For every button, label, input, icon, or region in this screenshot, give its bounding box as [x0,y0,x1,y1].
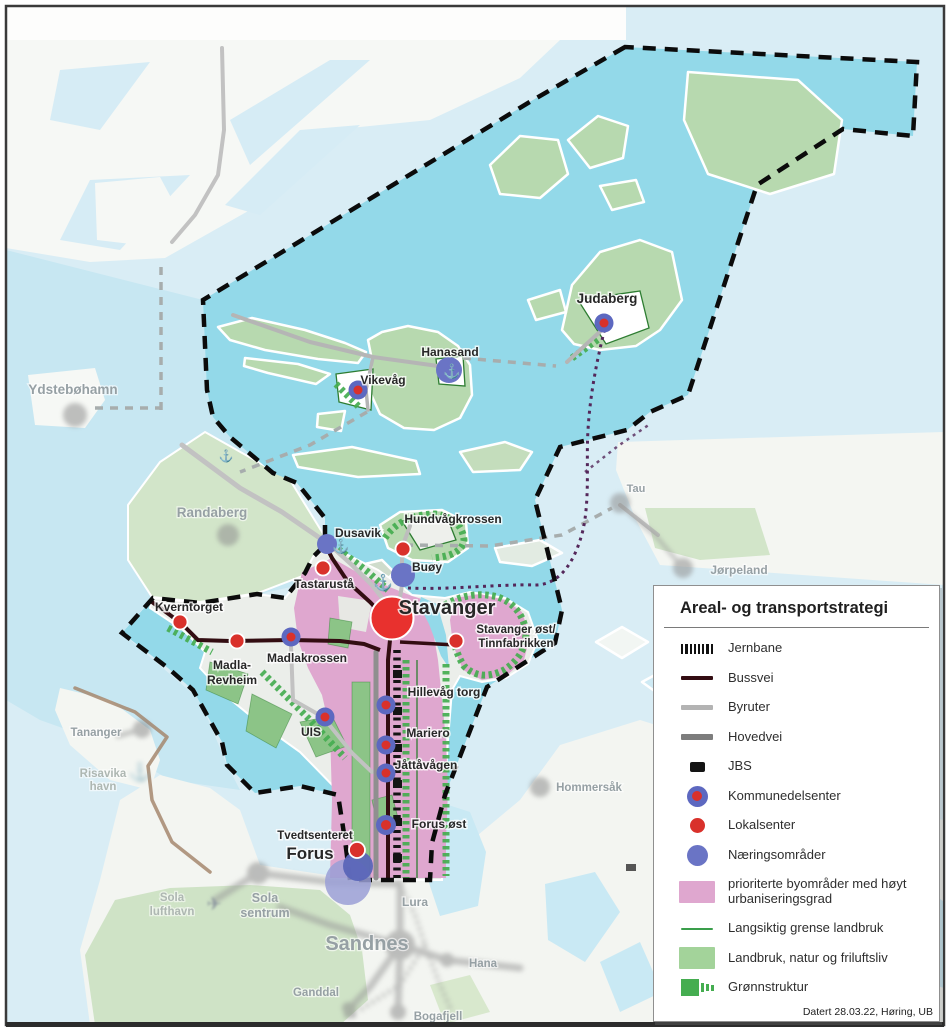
busway-line-icon [666,676,728,680]
map-page: ⚓ [0,0,950,1031]
legend-item-gronnstruktur: Grønnstruktur [654,973,939,1003]
anchor-icon: ⚓ [373,573,393,592]
label-buoy: Buøy [412,560,442,574]
label-sola-sentrum-1: Sola [252,891,279,905]
legend-item-jbs: JBS [654,752,939,782]
district-center-mariero [377,736,396,755]
urban-area-swatch-icon [666,881,728,903]
label-randaberg: Randaberg [177,505,248,520]
town-dot-randaberg [217,524,239,546]
legend-item-label: JBS [728,759,758,774]
legend-item-label: prioriterte byområder med høyt urbaniser… [728,877,924,906]
railway-icon [666,644,728,654]
district-center-icon [666,786,728,807]
label-dusavik: Dusavik [335,526,381,540]
label-stavanger-ost-1: Stavanger øst/ [476,624,556,636]
label-ganddal: Ganddal [293,987,339,999]
bussvei-corridor [388,640,390,878]
legend-item-landbruk: Landbruk, natur og friluftsliv [654,944,939,974]
label-madlakrossen: Madlakrossen [267,651,347,665]
label-sola-lufthavn-2: lufthavn [150,906,195,918]
map-frame-bottom [6,1022,944,1027]
label-hommersak: Hommersåk [556,782,622,794]
train-icon [344,1004,356,1018]
sola-green [85,885,368,1025]
local-center-icon [666,818,728,833]
legend-item-label: Grønnstruktur [728,980,814,995]
label-tvedtsenteret: Tvedtsenteret [277,830,353,842]
legend-item-label: Kommunedelsenter [728,789,847,804]
jbs-station [393,854,402,862]
town-dot-ydstebohamn [63,403,87,427]
train-station-icon [666,762,728,772]
label-forus: Forus [286,844,333,863]
legend-title: Areal- og transportstrategi [654,586,939,627]
legend-item-label: Landbruk, natur og friluftsliv [728,951,894,966]
local-center-tastarusta [316,561,331,576]
label-vikevag: Vikevåg [360,373,405,387]
local-center-madla [230,634,245,649]
label-risavika-2: havn [90,781,117,793]
label-madla-2: Revheim [207,673,257,687]
anchor-icon: ⚓ [332,538,349,555]
legend-footer: Datert 28.03.22, Høring, UB [803,1006,933,1018]
town-dot-tau [610,493,630,513]
jbs-station [393,670,402,678]
legend-separator [664,627,929,628]
label-uis: UIS [301,725,321,739]
legend-item-byomrader: prioriterte byområder med høyt urbaniser… [654,870,939,914]
label-stavanger-ost-2: Tinnfabrikken [478,638,553,650]
label-bogafjell: Bogafjell [414,1011,463,1023]
city-route-line-icon [666,705,728,710]
legend-item-kommunedelsenter: Kommunedelsenter [654,782,939,812]
district-center-hillevag [377,696,396,715]
local-center-kverntorget [173,615,188,630]
district-center-judaberg [595,314,614,333]
label-jorpeland: Jørpeland [710,563,767,577]
label-madla-1: Madla- [213,658,251,672]
legend-item-label: Byruter [728,700,776,715]
label-tau: Tau [627,483,646,495]
label-judaberg: Judaberg [577,291,638,306]
label-sola-sentrum-2: sentrum [240,906,289,920]
agri-boundary-line-icon [666,928,728,931]
legend-item-label: Næringsområder [728,848,832,863]
legend-item-label: Bussvei [728,671,780,686]
legend-item-bussvei: Bussvei [654,664,939,694]
local-center-hundvagkrossen [396,542,411,557]
main-road-line-icon [666,734,728,740]
plane-icon: ✈ [206,894,221,914]
district-center-forus-ost [376,815,396,835]
top-margin-land [6,6,626,40]
town-dot-sola [247,862,269,884]
town-dot-hommersak [530,777,550,797]
legend-item-label: Jernbane [728,641,788,656]
label-jattavagen: Jåttåvågen [395,758,458,772]
legend-item-lokalsenter: Lokalsenter [654,811,939,841]
legend-item-naeringsomrader: Næringsområder [654,841,939,871]
label-kverntorget: Kverntorget [155,600,223,614]
town-dot-jorpeland [673,558,693,578]
legend-item-hovedvei: Hovedvei [654,723,939,753]
district-center-madlakrossen [282,628,301,647]
label-hana: Hana [469,958,498,970]
legend-item-jernbane: Jernbane [654,634,939,664]
town-dot-bogafjell [390,1004,406,1020]
anchor-icon: ⚓ [219,449,234,463]
green-structure-icon [666,979,728,996]
legend-item-label: Hovedvei [728,730,788,745]
label-tananger: Tananger [71,727,122,739]
jbs-station [626,864,636,871]
legend-panel: Areal- og transportstrategi Jernbane Bus… [653,585,940,1022]
label-mariero: Mariero [406,726,449,740]
jbs-station [393,780,402,788]
local-center-stavanger-ost [449,634,464,649]
town-dot-tananger [133,720,151,738]
label-hillevag-torg: Hillevåg torg [408,685,481,699]
district-center-uis [316,708,335,727]
label-risavika-1: Risavika [80,768,127,780]
label-hanasand: Hanasand [421,345,478,359]
business-area-icon [666,845,728,866]
label-hundvagkrossen: Hundvågkrossen [404,512,501,526]
label-sandnes: Sandnes [325,933,408,955]
town-dot-hana [440,953,454,967]
legend-item-label: Lokalsenter [728,818,801,833]
local-center-tvedtsenteret [349,842,365,858]
anchor-icon: ⚓ [129,761,151,782]
label-tastarusta: Tastarustå [294,577,354,591]
label-ydstebohamn: Ydstebøhamn [28,382,117,397]
label-stavanger: Stavanger [399,597,496,619]
label-sola-lufthavn-1: Sola [160,892,185,904]
legend-item-byruter: Byruter [654,693,939,723]
district-center-jattavagen [377,764,396,783]
agriculture-swatch-icon [666,947,728,969]
anchor-icon: ⚓ [443,363,460,380]
legend-item-label: Langsiktig grense landbruk [728,921,889,936]
label-forus-ost: Forus øst [412,817,467,831]
label-lura: Lura [402,895,428,909]
legend-item-grense-landbruk: Langsiktig grense landbruk [654,914,939,944]
